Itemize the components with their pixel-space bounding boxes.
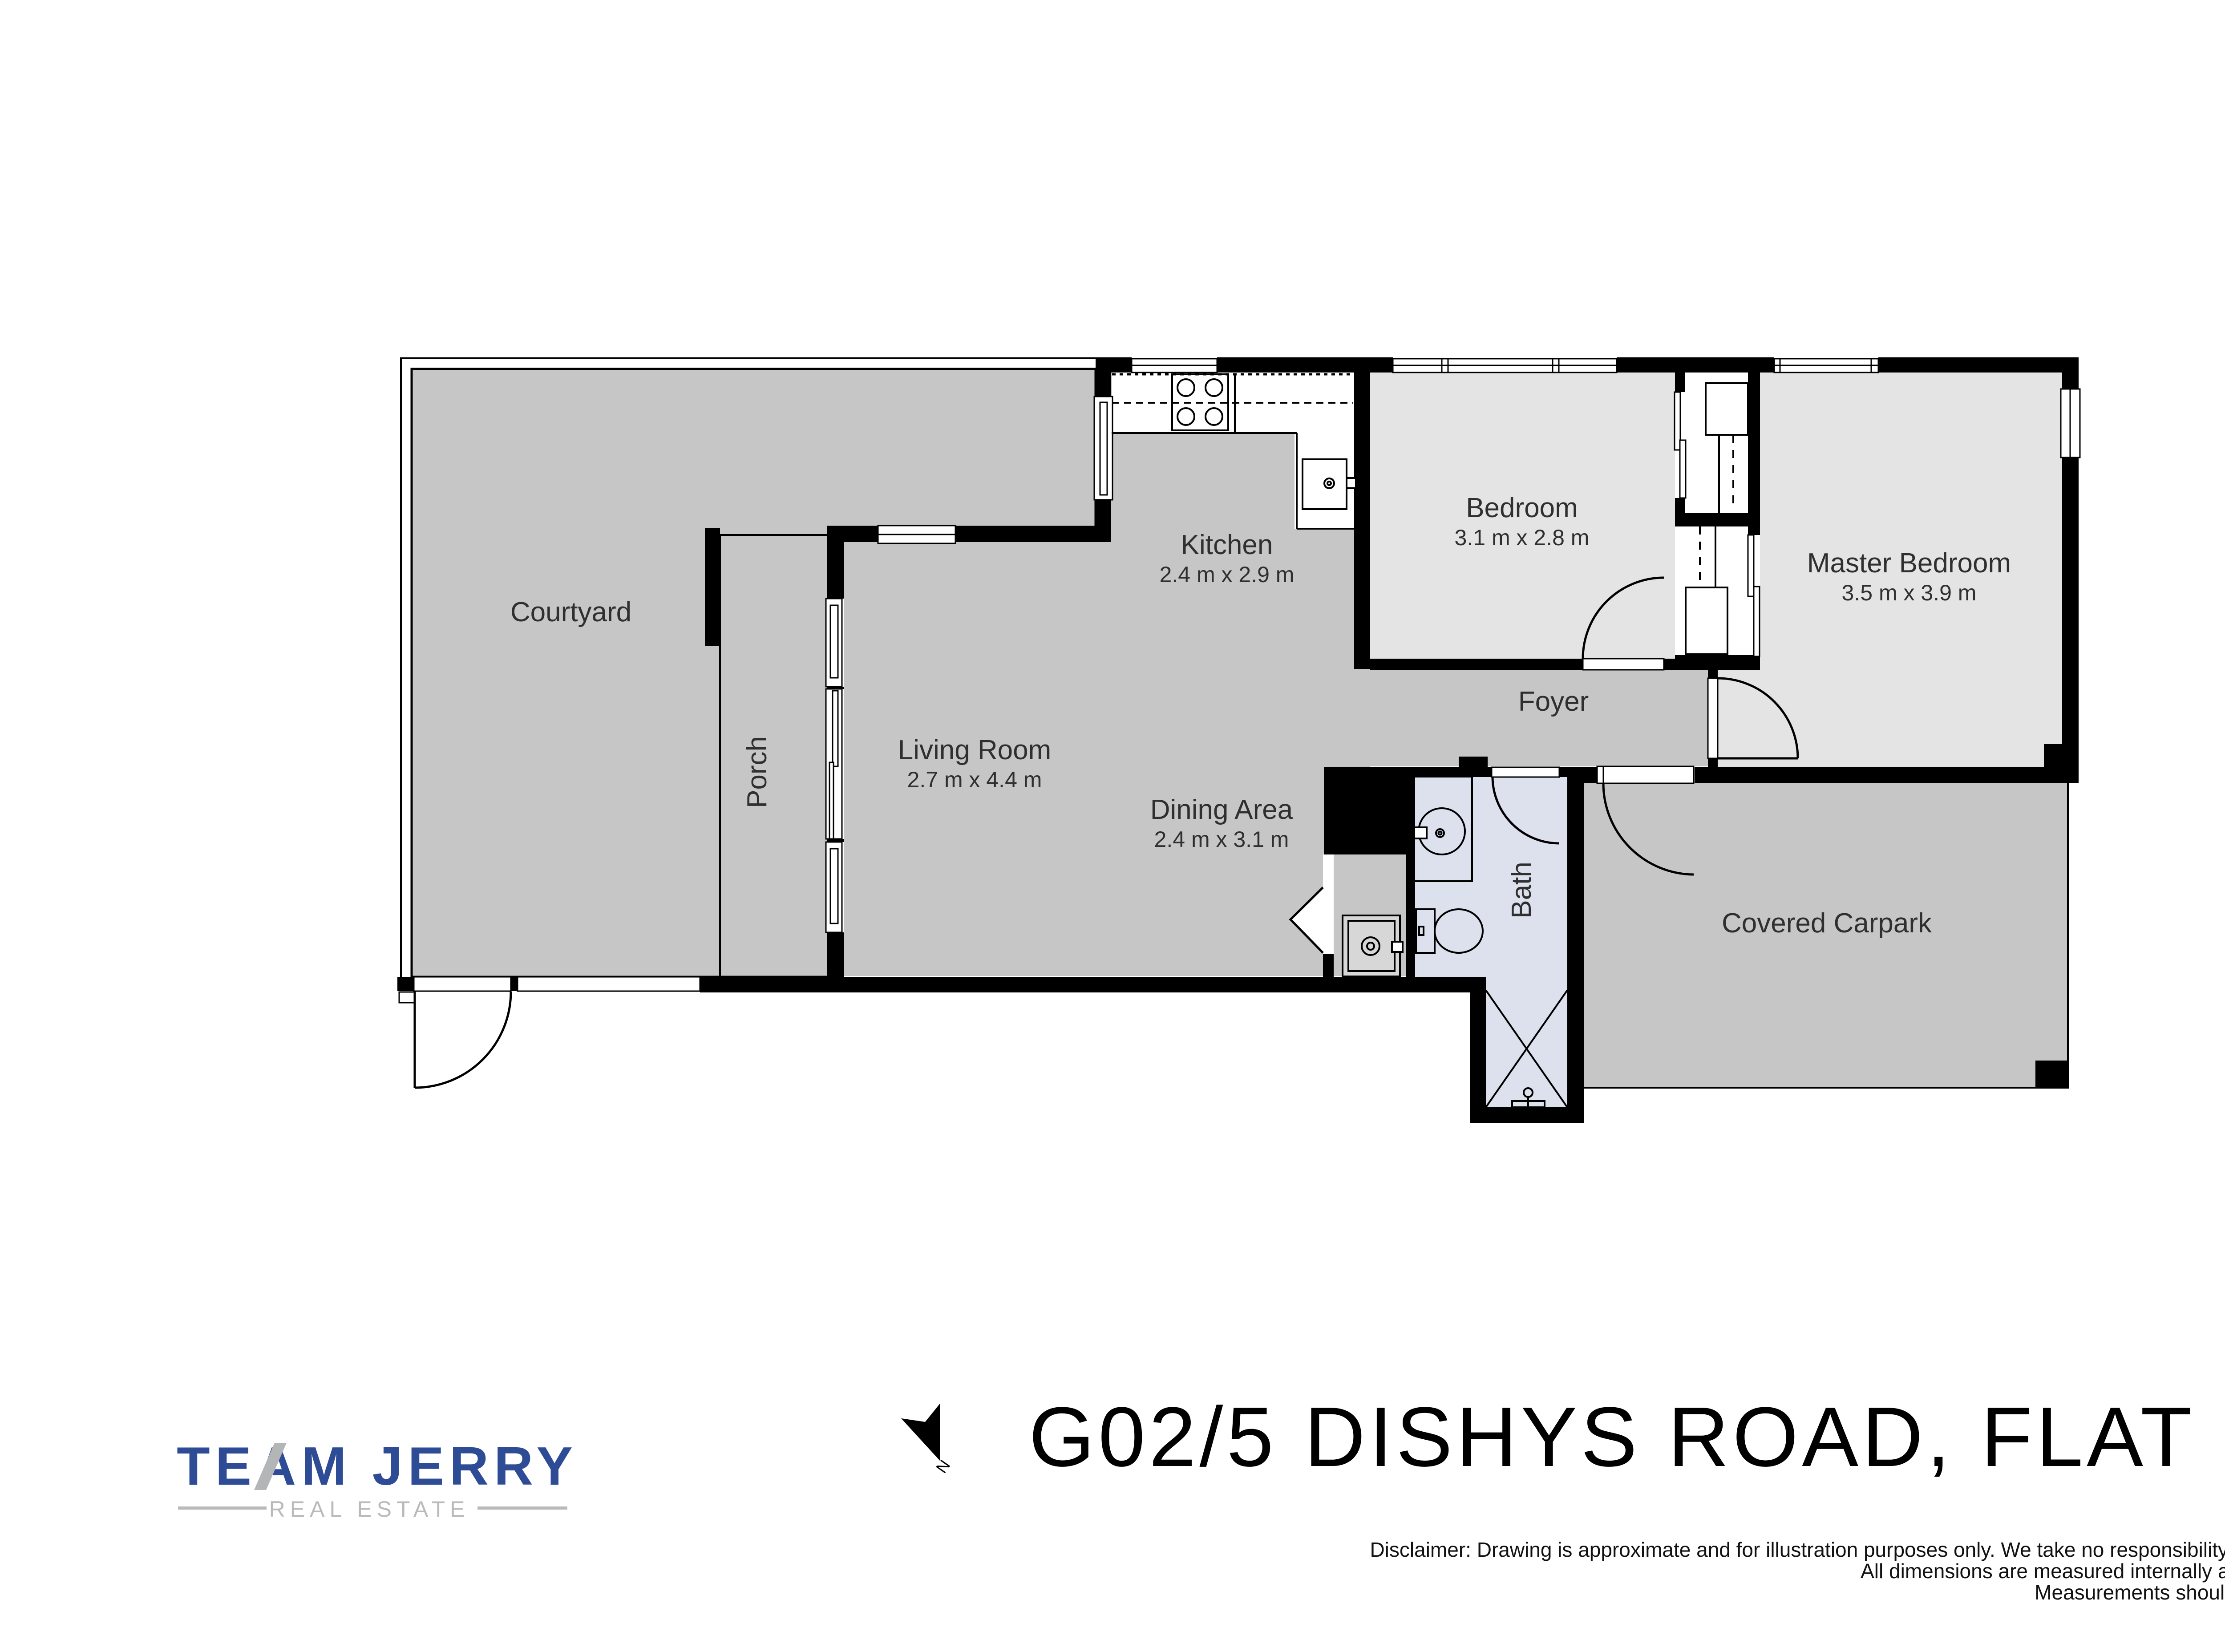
svg-text:G02/5 DISHYS ROAD, FLAT BUSH: G02/5 DISHYS ROAD, FLAT BUSH (1029, 1390, 2225, 1484)
svg-text:All dimensions are measured in: All dimensions are measured internally a… (1861, 1559, 2225, 1583)
svg-text:Covered Carpark: Covered Carpark (1722, 908, 1932, 939)
svg-text:REAL ESTATE: REAL ESTATE (269, 1497, 470, 1522)
svg-text:2.4 m x 3.1 m: 2.4 m x 3.1 m (1154, 827, 1289, 852)
svg-text:Kitchen: Kitchen (1181, 530, 1273, 560)
svg-text:2.4 m x 2.9 m: 2.4 m x 2.9 m (1160, 562, 1295, 587)
svg-text:Bedroom: Bedroom (1466, 493, 1578, 523)
svg-text:Measurements should be verifie: Measurements should be verified by the b… (2035, 1581, 2225, 1604)
svg-text:Foyer: Foyer (1518, 686, 1589, 717)
svg-text:3.5 m x 3.9 m: 3.5 m x 3.9 m (1842, 580, 1977, 605)
svg-text:Master Bedroom: Master Bedroom (1807, 548, 2011, 579)
svg-text:Dining Area: Dining Area (1150, 794, 1293, 825)
svg-text:3.1 m x 2.8 m: 3.1 m x 2.8 m (1455, 525, 1590, 550)
svg-text:Disclaimer: Drawing is approxi: Disclaimer: Drawing is approximate and f… (1370, 1538, 2225, 1561)
svg-text:Bath: Bath (1506, 862, 1537, 919)
svg-text:Porch: Porch (742, 736, 773, 808)
svg-text:2.7 m x 4.4 m: 2.7 m x 4.4 m (907, 767, 1042, 792)
svg-text:Living Room: Living Room (898, 735, 1052, 765)
svg-text:Courtyard: Courtyard (510, 597, 631, 628)
svg-text:TEAM JERRY: TEAM JERRY (177, 1436, 578, 1496)
